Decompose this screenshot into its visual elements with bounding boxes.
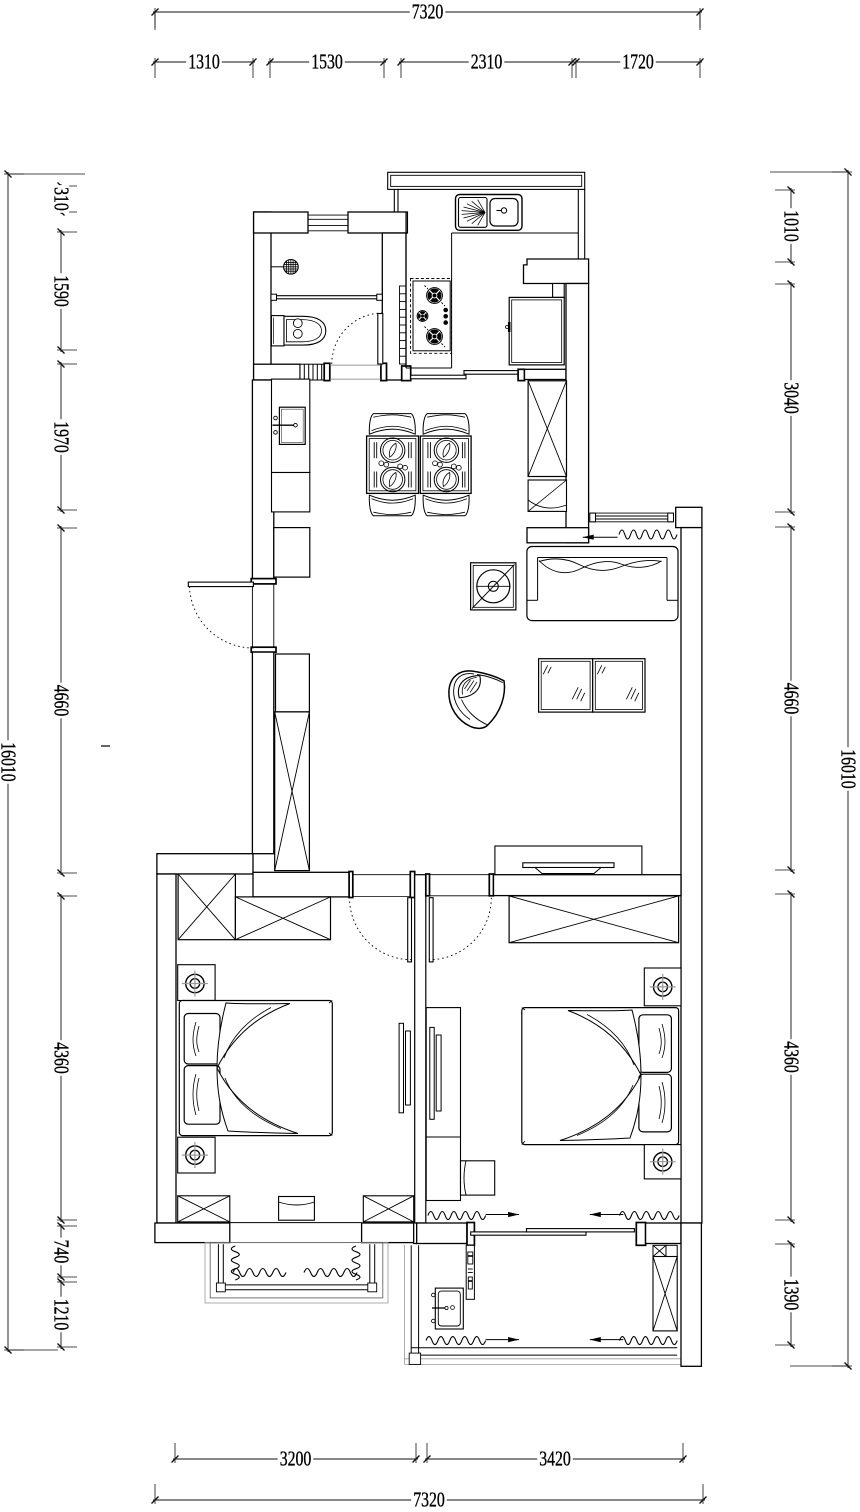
svg-text:1970: 1970 bbox=[50, 421, 74, 453]
svg-text:4360: 4360 bbox=[780, 1041, 804, 1073]
svg-text:1390: 1390 bbox=[780, 1279, 804, 1311]
svg-text:7320: 7320 bbox=[413, 1487, 445, 1511]
svg-text:7320: 7320 bbox=[412, 0, 444, 23]
svg-text:1590: 1590 bbox=[50, 275, 74, 307]
svg-text:1310: 1310 bbox=[188, 49, 220, 73]
svg-text:16010: 16010 bbox=[0, 742, 21, 782]
svg-text:3200: 3200 bbox=[280, 1446, 312, 1470]
svg-text:740: 740 bbox=[50, 1240, 74, 1264]
svg-text:3040: 3040 bbox=[780, 382, 804, 414]
svg-text:1210: 1210 bbox=[50, 1299, 74, 1331]
svg-text:2310: 2310 bbox=[471, 49, 503, 73]
svg-text:4660: 4660 bbox=[50, 685, 74, 717]
svg-text:310: 310 bbox=[50, 187, 74, 211]
svg-text:1530: 1530 bbox=[311, 49, 343, 73]
svg-text:1010: 1010 bbox=[780, 210, 804, 242]
svg-text:4360: 4360 bbox=[50, 1042, 74, 1074]
svg-text:4660: 4660 bbox=[780, 683, 804, 715]
svg-text:3420: 3420 bbox=[539, 1446, 571, 1470]
svg-text:1720: 1720 bbox=[622, 49, 654, 73]
svg-text:16010: 16010 bbox=[837, 749, 860, 789]
